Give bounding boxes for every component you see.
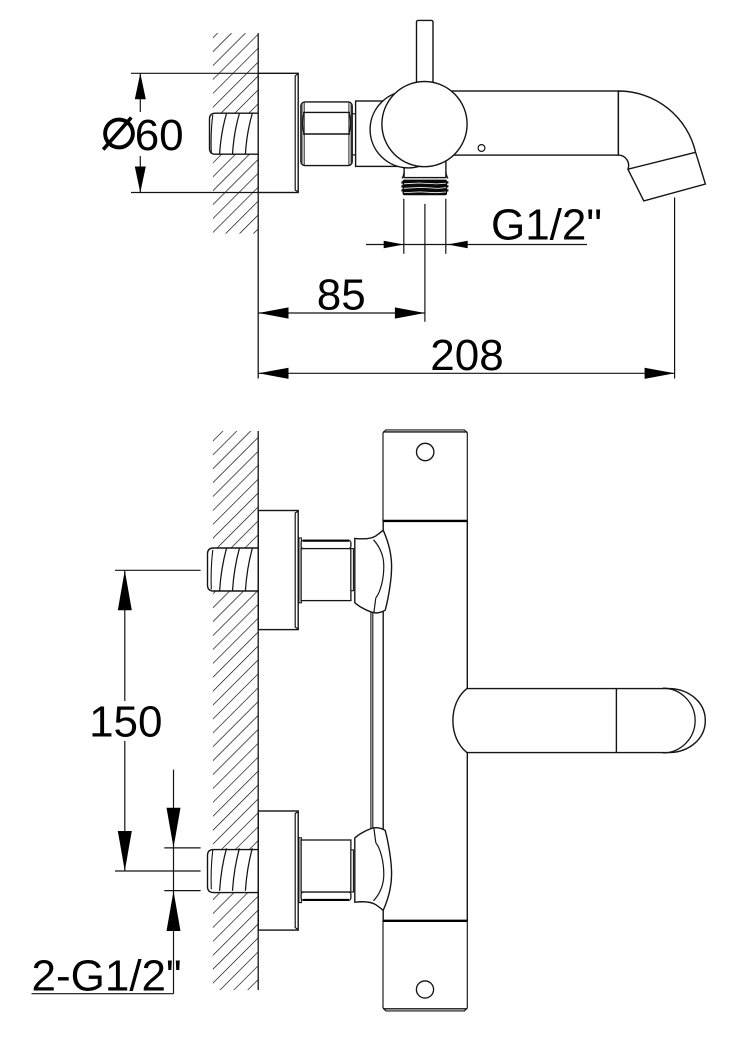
svg-text:150: 150 — [89, 698, 162, 747]
svg-text:85: 85 — [317, 270, 366, 319]
svg-text:208: 208 — [430, 331, 503, 380]
svg-text:G1/2": G1/2" — [491, 201, 602, 250]
svg-text:60: 60 — [135, 111, 184, 160]
svg-text:2-G1/2": 2-G1/2" — [32, 951, 182, 1000]
